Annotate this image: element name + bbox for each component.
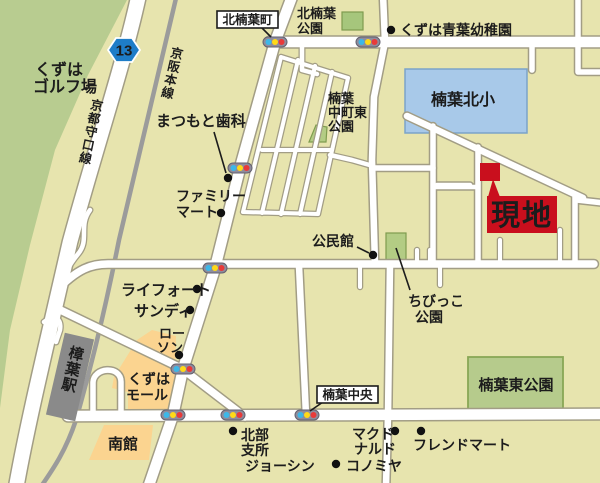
nakamachi-label-1: 楠葉 xyxy=(327,91,355,106)
kita-park-label-2: 公園 xyxy=(297,21,323,36)
kindergarten-dot xyxy=(387,26,395,34)
minamikan-label: 南館 xyxy=(108,435,138,453)
kita-kuzuha-park-area xyxy=(342,12,363,30)
signal-icon xyxy=(203,263,227,273)
mall-label-1: くずは xyxy=(128,371,170,387)
signal-icon xyxy=(221,410,245,420)
sundi-label: サンディ xyxy=(134,302,193,320)
hokubu-dot xyxy=(229,427,237,435)
konomiya-dot xyxy=(332,460,340,468)
chibikko-label-1: ちびっこ xyxy=(408,293,464,309)
kindergarten-label: くずは青葉幼稚園 xyxy=(400,22,512,38)
lifort-label: ライフォート xyxy=(121,282,211,299)
friendmart-label: フレンドマート xyxy=(413,437,511,453)
chibikko-park-area xyxy=(386,233,406,261)
chibikko-label-2: 公園 xyxy=(415,309,443,325)
site-label: 現地 xyxy=(491,199,553,232)
dental-label: まつもと歯科 xyxy=(156,112,246,130)
dental-dot xyxy=(224,174,232,182)
kuzuha-chuo-box: 楠葉中央 xyxy=(317,386,378,403)
familymart-dot xyxy=(217,209,225,217)
signal-icon xyxy=(161,410,185,420)
map-canvas: 樟葉駅 13 xyxy=(0,0,600,483)
route-13-shield: 13 xyxy=(108,38,140,62)
golf-label-1: くずは xyxy=(35,60,83,79)
mcdonalds-label-2: ナルド xyxy=(354,441,396,457)
community-hall-label: 公民館 xyxy=(312,233,354,249)
familymart-label-2: マート xyxy=(176,204,218,220)
signal-icon xyxy=(228,163,252,173)
friendmart-dot xyxy=(417,427,425,435)
joshin-label: ジョーシン xyxy=(245,458,315,474)
site-square xyxy=(480,163,500,181)
mcdonalds-label-1: マクド xyxy=(352,426,394,442)
lawson-label-2: ソン xyxy=(157,340,183,355)
community-hall-dot xyxy=(369,251,377,259)
higashi-park-label: 楠葉東公園 xyxy=(478,376,553,394)
signal-icon xyxy=(171,364,195,374)
familymart-label-1: ファミリー xyxy=(176,188,246,204)
signal-icon xyxy=(263,37,287,47)
kitakuzuha-cho-label: 北楠葉町 xyxy=(222,12,273,27)
kitakuzuha-cho-box: 北楠葉町 xyxy=(217,11,278,28)
mall-label-2: モール xyxy=(126,387,168,403)
route-13-number: 13 xyxy=(116,43,133,60)
golf-label-2: ゴルフ場 xyxy=(33,77,97,96)
hokubu-label-2: 支所 xyxy=(240,442,269,458)
signal-icon xyxy=(295,410,319,420)
signal-icon xyxy=(356,37,380,47)
access-map: 樟葉駅 13 xyxy=(0,0,600,483)
nakamachi-label-2: 中町東 xyxy=(328,105,367,120)
kuzuha-chuo-label: 楠葉中央 xyxy=(321,387,373,402)
hokubu-label-1: 北部 xyxy=(241,427,269,443)
school-label: 楠葉北小 xyxy=(430,90,495,109)
konomiya-label: コノミヤ xyxy=(346,458,402,474)
kita-park-label-1: 北楠葉 xyxy=(297,6,337,21)
nakamachi-label-3: 公園 xyxy=(328,119,354,134)
lawson-label-1: ロー xyxy=(159,326,185,341)
